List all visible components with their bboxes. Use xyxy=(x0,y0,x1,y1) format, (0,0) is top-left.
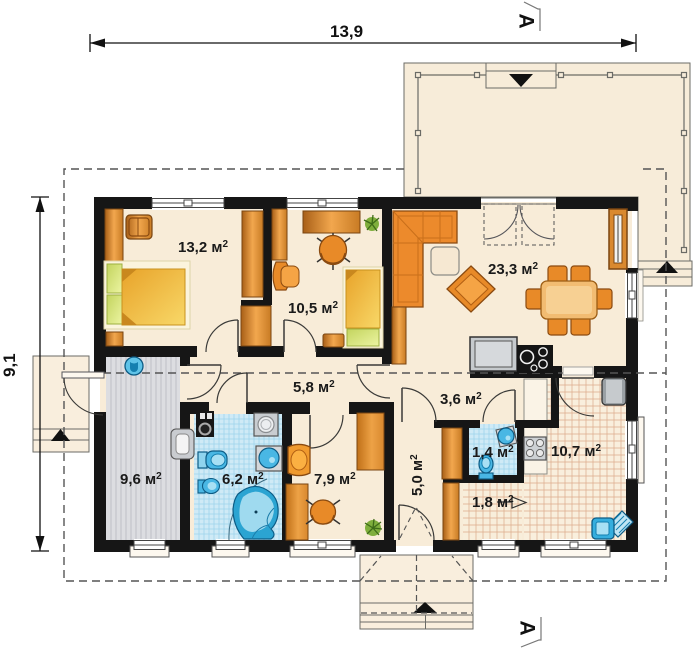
svg-text:23,3 м2: 23,3 м2 xyxy=(488,261,538,278)
svg-text:1,4 м2: 1,4 м2 xyxy=(472,444,514,461)
svg-text:3,6 м2: 3,6 м2 xyxy=(440,391,482,408)
svg-text:13,9: 13,9 xyxy=(330,22,363,41)
svg-text:A: A xyxy=(515,14,538,29)
svg-text:5,0 м2: 5,0 м2 xyxy=(409,454,426,496)
svg-text:10,5 м2: 10,5 м2 xyxy=(288,300,338,317)
svg-text:10,7 м2: 10,7 м2 xyxy=(551,443,601,460)
svg-text:A: A xyxy=(516,621,539,636)
svg-text:5,8 м2: 5,8 м2 xyxy=(293,379,335,396)
svg-text:1,8 м2: 1,8 м2 xyxy=(472,494,514,511)
svg-text:6,2 м2: 6,2 м2 xyxy=(222,471,264,488)
svg-text:9,1: 9,1 xyxy=(0,353,19,377)
svg-text:9,6 м2: 9,6 м2 xyxy=(120,471,162,488)
svg-text:7,9 м2: 7,9 м2 xyxy=(314,471,356,488)
svg-text:13,2 м2: 13,2 м2 xyxy=(178,239,228,256)
